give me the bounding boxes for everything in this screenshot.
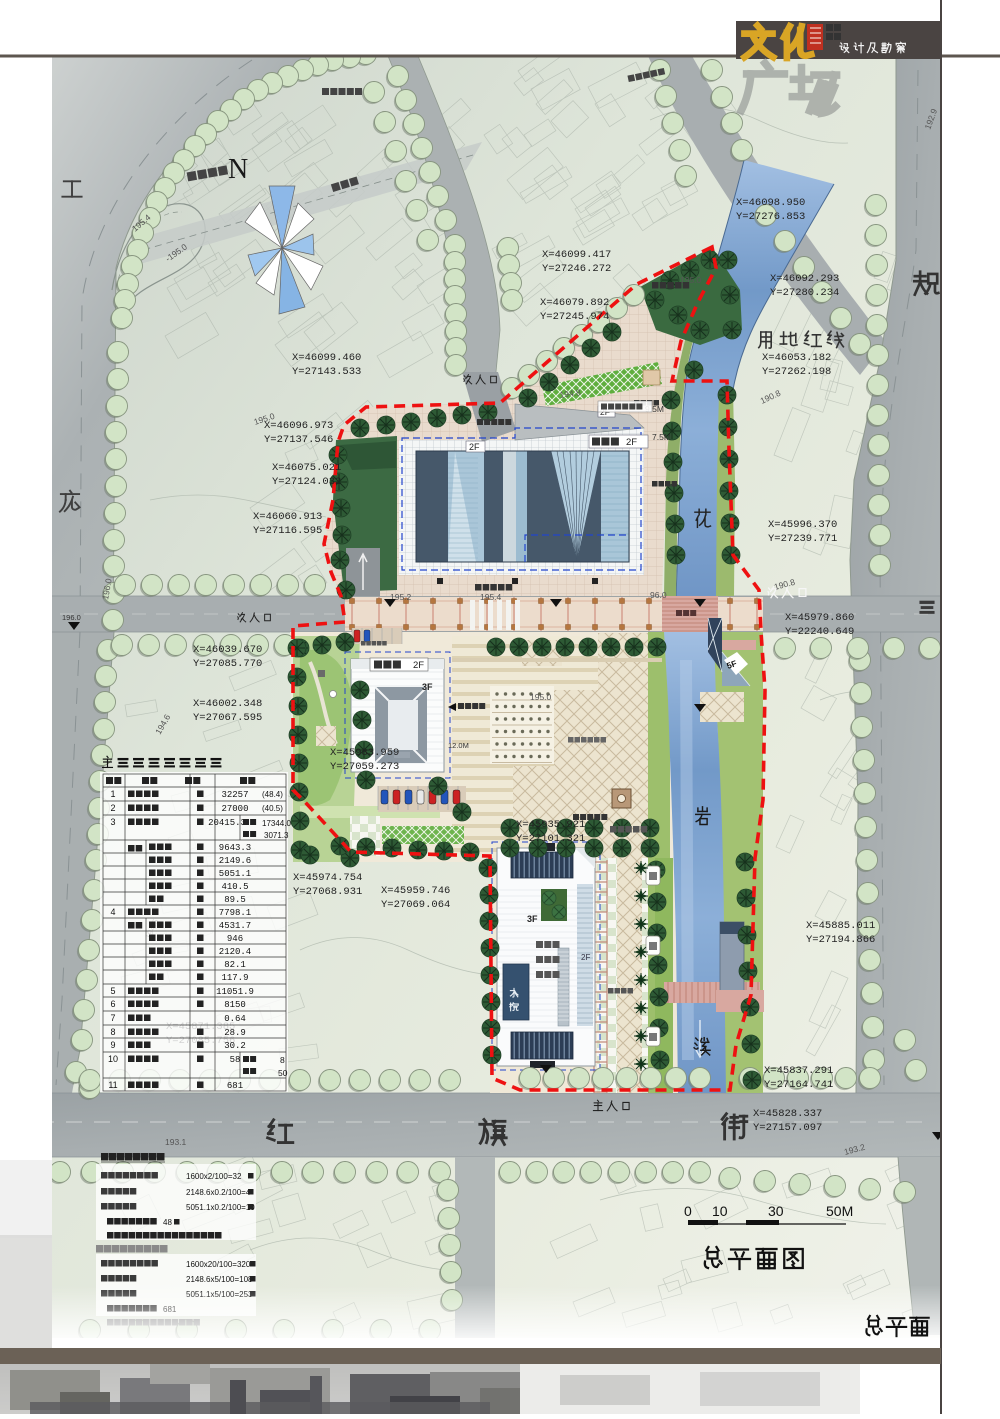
svg-text:0: 0 bbox=[684, 1203, 692, 1219]
svg-text:Y=27068.931: Y=27068.931 bbox=[293, 886, 362, 898]
svg-text:6: 6 bbox=[110, 999, 115, 1009]
svg-text:Y=27067.595: Y=27067.595 bbox=[193, 712, 262, 724]
svg-text:30: 30 bbox=[768, 1203, 784, 1219]
svg-text:Y=27059.273: Y=27059.273 bbox=[330, 761, 399, 773]
svg-text:12.0M: 12.0M bbox=[448, 741, 469, 750]
svg-text:58: 58 bbox=[230, 1055, 241, 1065]
svg-text:X=46060.913: X=46060.913 bbox=[253, 511, 322, 523]
svg-text:82.1: 82.1 bbox=[224, 960, 246, 970]
svg-text:195.0: 195.0 bbox=[530, 692, 552, 702]
svg-text:30.2: 30.2 bbox=[224, 1041, 246, 1051]
svg-text:Y=27137.546: Y=27137.546 bbox=[264, 434, 333, 446]
svg-text:Y=27124.032: Y=27124.032 bbox=[272, 476, 341, 488]
svg-text:X=45959.746: X=45959.746 bbox=[381, 885, 450, 897]
svg-text:5051.1x0.2/100=10: 5051.1x0.2/100=10 bbox=[186, 1203, 255, 1212]
svg-text:27000: 27000 bbox=[221, 804, 248, 814]
svg-text:2F: 2F bbox=[469, 442, 480, 452]
svg-text:Y=27239.771: Y=27239.771 bbox=[768, 533, 837, 545]
svg-text:Y=27101.321: Y=27101.321 bbox=[516, 833, 585, 845]
svg-text:196.0: 196.0 bbox=[62, 613, 81, 622]
svg-text:4531.7: 4531.7 bbox=[219, 921, 251, 931]
svg-text:8: 8 bbox=[280, 1055, 285, 1065]
svg-text:X=45983.959: X=45983.959 bbox=[330, 747, 399, 759]
svg-text:X=45935.921: X=45935.921 bbox=[516, 819, 585, 831]
svg-text:X=46079.892: X=46079.892 bbox=[540, 297, 609, 309]
svg-text:10: 10 bbox=[712, 1203, 728, 1219]
svg-text:Y=27164.741: Y=27164.741 bbox=[764, 1079, 833, 1091]
svg-text:1600x2/100=32: 1600x2/100=32 bbox=[186, 1172, 242, 1181]
svg-text:Y=27143.533: Y=27143.533 bbox=[292, 366, 361, 378]
svg-text:5051.1: 5051.1 bbox=[219, 869, 251, 879]
svg-text:Y=27245.974: Y=27245.974 bbox=[540, 311, 609, 323]
svg-text:X=45974.754: X=45974.754 bbox=[293, 872, 362, 884]
svg-text:3F: 3F bbox=[527, 914, 538, 924]
svg-text:17344.0: 17344.0 bbox=[262, 819, 291, 828]
svg-text:3F: 3F bbox=[422, 682, 433, 692]
svg-text:1: 1 bbox=[110, 789, 115, 799]
svg-text:48: 48 bbox=[163, 1218, 172, 1227]
svg-text:7798.1: 7798.1 bbox=[219, 908, 251, 918]
svg-text:9643.3: 9643.3 bbox=[219, 843, 251, 853]
svg-text:7: 7 bbox=[110, 1013, 115, 1023]
svg-text:Y=27280.234: Y=27280.234 bbox=[770, 287, 839, 299]
svg-text:32257: 32257 bbox=[221, 790, 248, 800]
svg-text:8150: 8150 bbox=[224, 1000, 246, 1010]
svg-text:Y=27157.097: Y=27157.097 bbox=[753, 1122, 822, 1134]
svg-text:11: 11 bbox=[108, 1080, 117, 1090]
svg-text:X=46092.293: X=46092.293 bbox=[770, 273, 839, 285]
svg-text:946: 946 bbox=[227, 934, 243, 944]
svg-text:0.64: 0.64 bbox=[224, 1014, 246, 1024]
svg-text:Y=27069.064: Y=27069.064 bbox=[381, 899, 450, 911]
svg-text:X=46002.348: X=46002.348 bbox=[193, 698, 262, 710]
svg-text:X=46075.021: X=46075.021 bbox=[272, 462, 341, 474]
svg-text:3071.3: 3071.3 bbox=[264, 831, 289, 840]
svg-text:2120.4: 2120.4 bbox=[219, 947, 251, 957]
svg-text:X=45885.011: X=45885.011 bbox=[806, 920, 875, 932]
svg-text:1600x20/100=320: 1600x20/100=320 bbox=[186, 1260, 251, 1269]
svg-text:9: 9 bbox=[110, 1040, 115, 1050]
svg-text:50M: 50M bbox=[826, 1203, 853, 1219]
svg-text:Y=27276.853: Y=27276.853 bbox=[736, 211, 805, 223]
svg-text:7.5M: 7.5M bbox=[652, 432, 671, 442]
svg-text:X=46099.417: X=46099.417 bbox=[542, 249, 611, 261]
svg-text:2: 2 bbox=[110, 803, 115, 813]
svg-text:2148.6x0.2/100=4: 2148.6x0.2/100=4 bbox=[186, 1188, 251, 1197]
svg-text:N: N bbox=[228, 154, 248, 185]
svg-text:8: 8 bbox=[110, 1027, 115, 1037]
svg-text:2F: 2F bbox=[581, 953, 590, 962]
svg-text:681: 681 bbox=[227, 1081, 243, 1091]
svg-text:195.4: 195.4 bbox=[480, 592, 502, 602]
svg-text:11051.9: 11051.9 bbox=[216, 987, 254, 997]
svg-text:Y=27246.272: Y=27246.272 bbox=[542, 263, 611, 275]
svg-text:Y=27116.595: Y=27116.595 bbox=[253, 525, 322, 537]
svg-text:96.0: 96.0 bbox=[650, 590, 667, 600]
svg-text:X=46053.182: X=46053.182 bbox=[762, 352, 831, 364]
svg-text:X=46099.460: X=46099.460 bbox=[292, 352, 361, 364]
svg-text:Y=27262.198: Y=27262.198 bbox=[762, 366, 831, 378]
svg-text:50: 50 bbox=[278, 1068, 288, 1078]
svg-text:Y=22240.649: Y=22240.649 bbox=[785, 626, 854, 638]
svg-text:X=45828.337: X=45828.337 bbox=[753, 1108, 822, 1120]
svg-text:20415.3: 20415.3 bbox=[208, 818, 246, 828]
svg-text:4: 4 bbox=[110, 907, 115, 917]
svg-text:X=45996.370: X=45996.370 bbox=[768, 519, 837, 531]
svg-text:(48.4): (48.4) bbox=[262, 790, 283, 799]
svg-text:193.1: 193.1 bbox=[165, 1137, 187, 1147]
svg-text:X=46096.973: X=46096.973 bbox=[264, 420, 333, 432]
svg-text:2148.6x5/100=108: 2148.6x5/100=108 bbox=[186, 1275, 253, 1284]
svg-text:117.9: 117.9 bbox=[221, 973, 248, 983]
svg-text:3: 3 bbox=[110, 817, 115, 827]
svg-text:X=46098.950: X=46098.950 bbox=[736, 197, 805, 209]
svg-text:5: 5 bbox=[110, 986, 115, 996]
svg-text:Y=27194.866: Y=27194.866 bbox=[806, 934, 875, 946]
svg-text:410.5: 410.5 bbox=[221, 882, 248, 892]
svg-text:2F: 2F bbox=[626, 437, 637, 448]
svg-text:28.9: 28.9 bbox=[224, 1028, 246, 1038]
svg-text:89.5: 89.5 bbox=[224, 895, 246, 905]
svg-text:X=46039.670: X=46039.670 bbox=[193, 644, 262, 656]
svg-text:Y=27085.770: Y=27085.770 bbox=[193, 658, 262, 670]
svg-text:2149.6: 2149.6 bbox=[219, 856, 251, 866]
svg-text:X=45837.291: X=45837.291 bbox=[764, 1065, 833, 1077]
svg-text:X=45979.860: X=45979.860 bbox=[785, 612, 854, 624]
svg-text:(40.5): (40.5) bbox=[262, 804, 283, 813]
svg-text:2F: 2F bbox=[413, 660, 424, 671]
svg-text:10: 10 bbox=[108, 1054, 118, 1064]
